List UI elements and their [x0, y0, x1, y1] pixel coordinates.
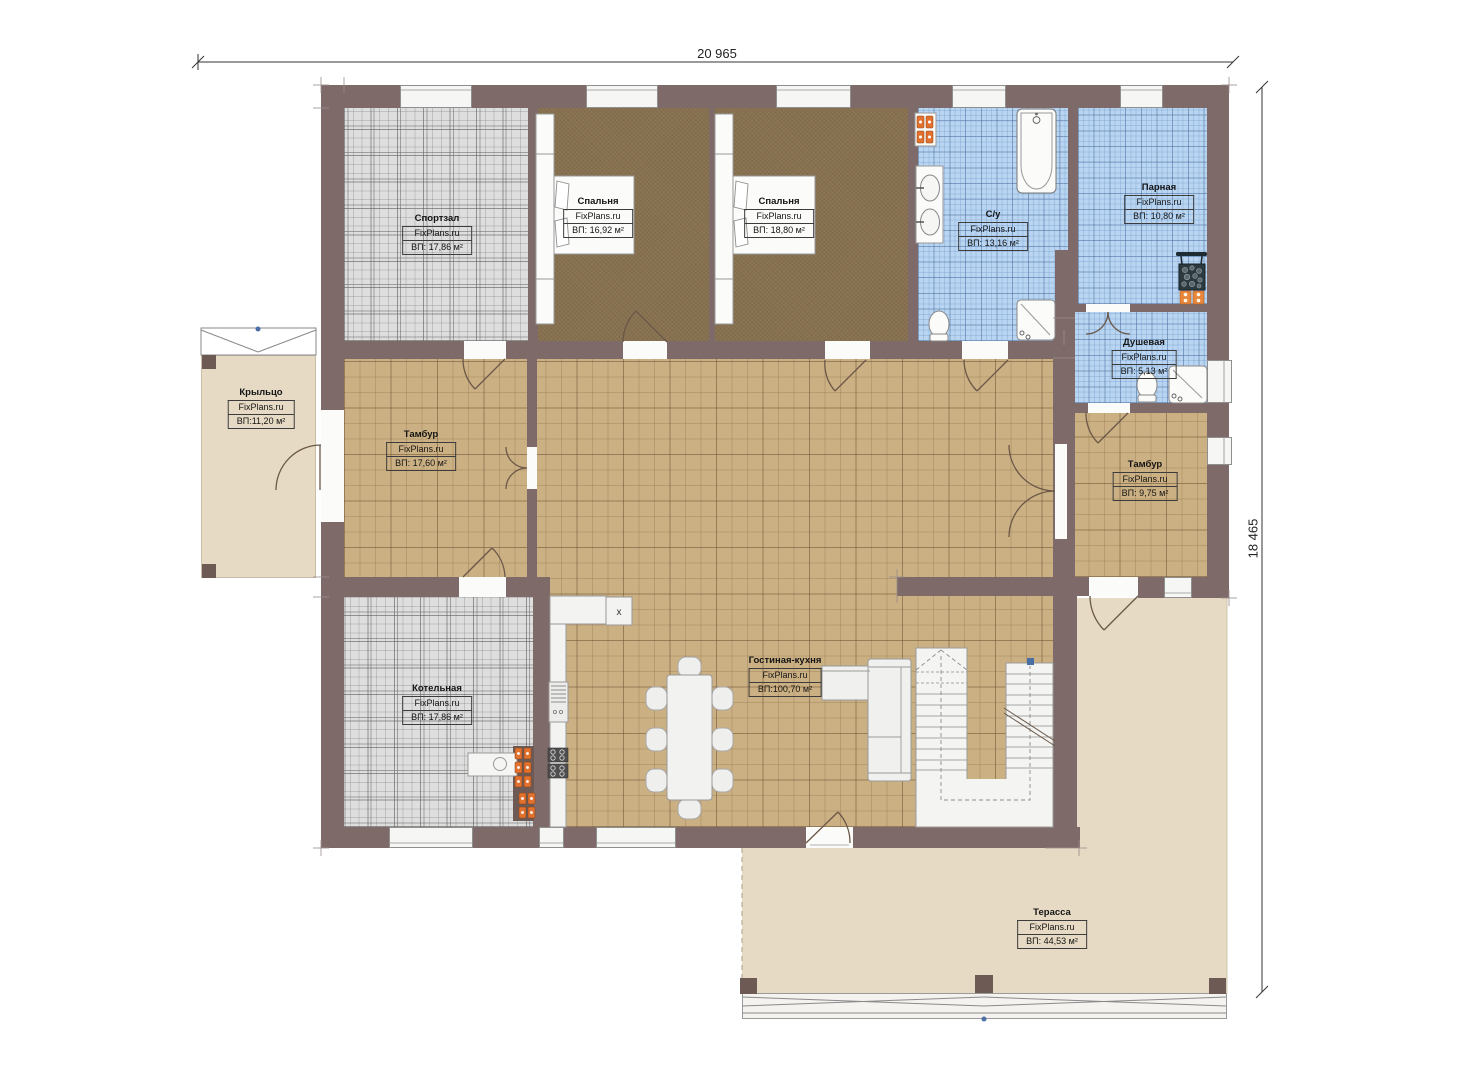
svg-text:x: x: [617, 607, 622, 618]
